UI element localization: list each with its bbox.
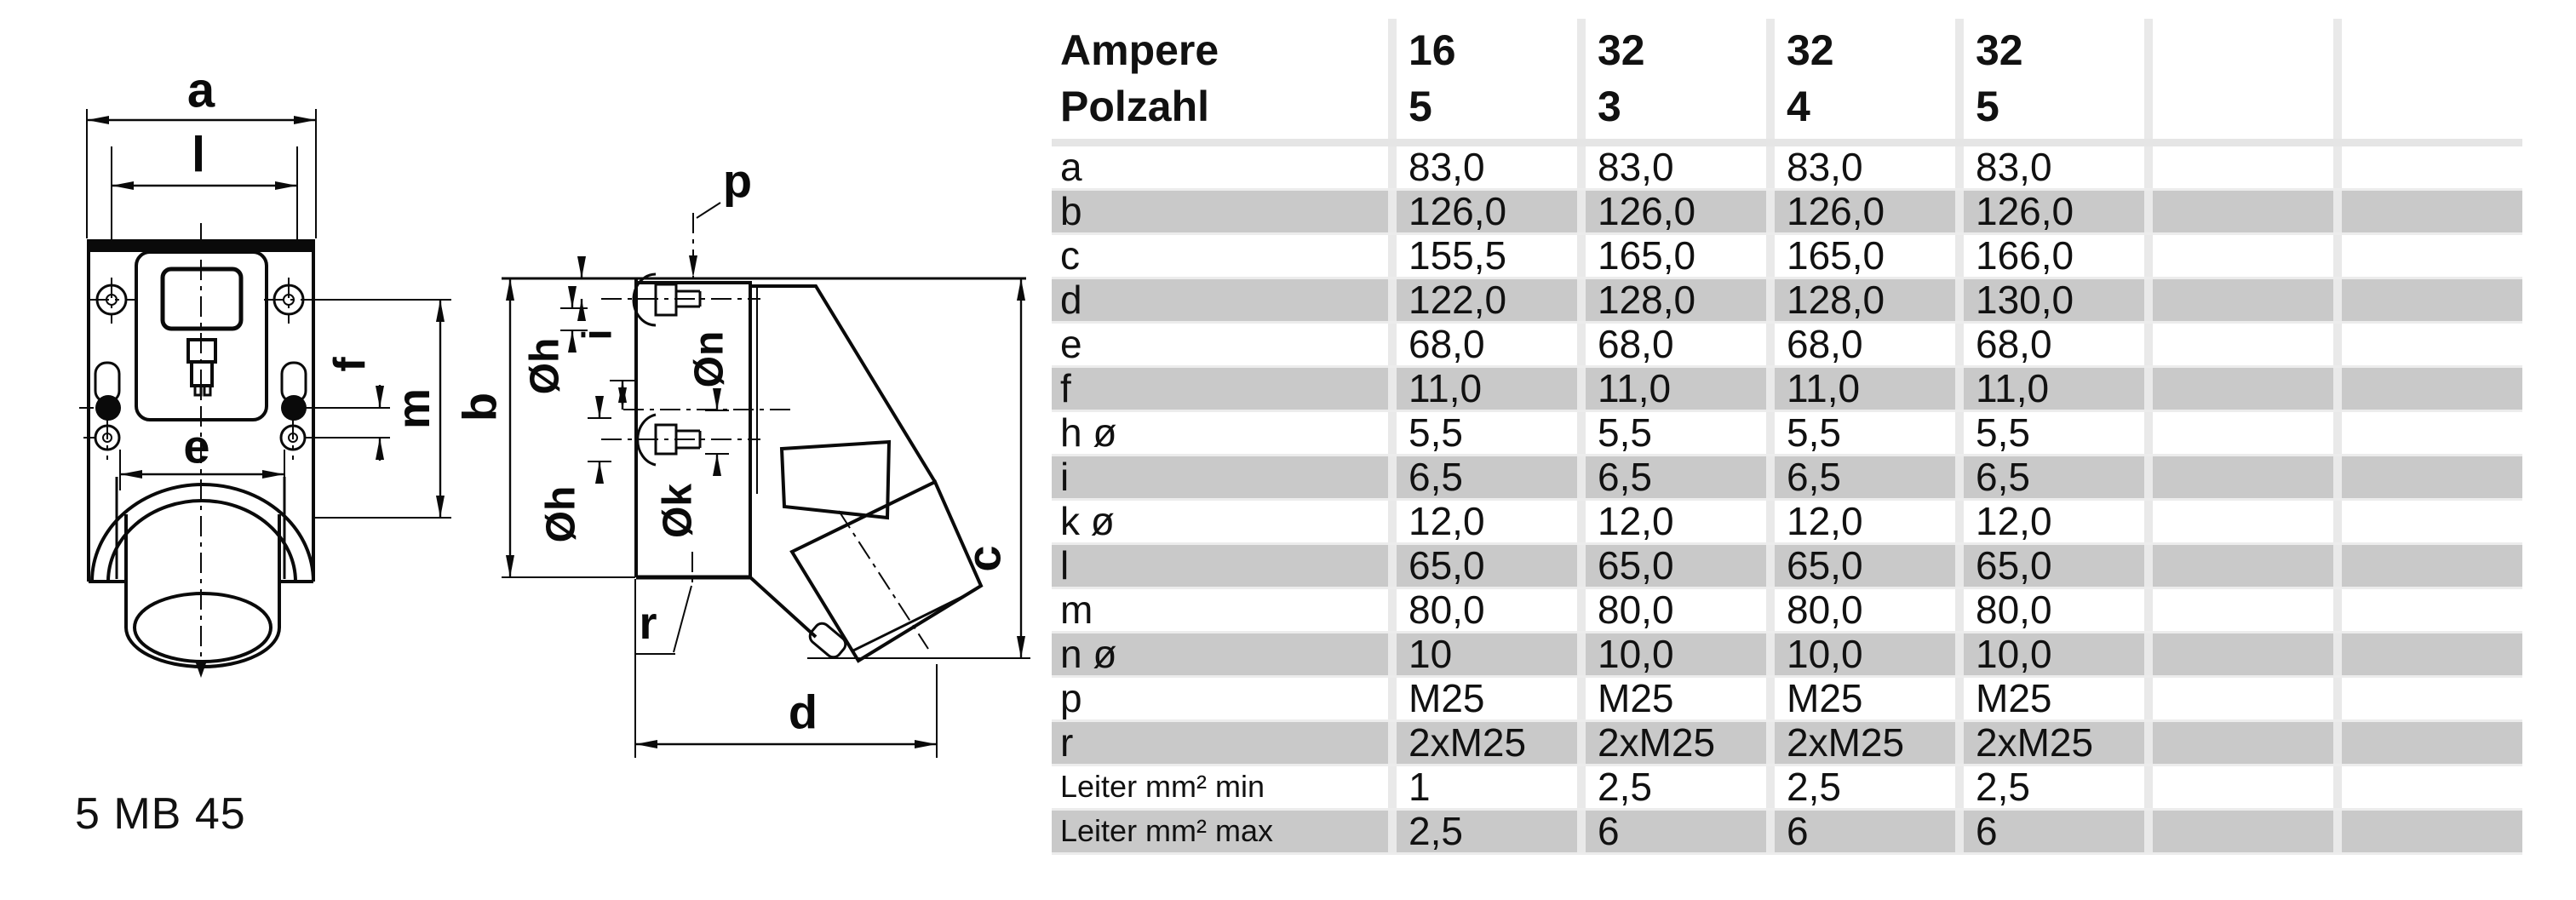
table-cell: 2xM25 [1397,722,1577,764]
table-cell [2342,235,2522,277]
header-value-cell: 16 5 [1397,19,1577,139]
catalog-page: { "model_label": "5 MB 45", "drawing": {… [0,0,2576,900]
table-cell: 10,0 [1586,633,1766,675]
row-label: m [1052,589,1388,631]
row-label: l [1052,545,1388,587]
table-cell: 12,0 [1586,501,1766,542]
table-cell: 11,0 [1397,368,1577,410]
table-row: a 83,0 83,0 83,0 83,0 [1052,146,2522,191]
dim-label-c: c [957,545,1011,571]
table-cell: 2xM25 [1586,722,1766,764]
table-row: h ø 5,5 5,5 5,5 5,5 [1052,412,2522,456]
row-label: i [1052,456,1388,498]
polzahl-value: 4 [1787,78,1955,135]
header-value-cell: 32 4 [1775,19,1955,139]
table-cell [2153,545,2333,587]
table-cell [2153,678,2333,719]
table-row: e 68,0 68,0 68,0 68,0 [1052,324,2522,368]
header-value-cell [2153,19,2333,139]
row-label: k ø [1052,501,1388,542]
table-row: c 155,5 165,0 165,0 166,0 [1052,235,2522,279]
technical-drawing: a l [0,0,1064,900]
table-cell: 68,0 [1397,324,1577,365]
table-header-row: Ampere Polzahl 16 5 32 3 32 4 32 5 [1052,19,2522,139]
table-row: p M25 M25 M25 M25 [1052,678,2522,722]
front-view: a l [79,63,451,679]
table-cell: 5,5 [1775,412,1955,454]
table-cell [2153,412,2333,454]
header-value-cell [2342,19,2522,139]
table-cell: 65,0 [1397,545,1577,587]
row-label: b [1052,191,1388,232]
ampere-value: 16 [1408,19,1577,78]
table-row: d 122,0 128,0 128,0 130,0 [1052,279,2522,324]
table-cell [2342,279,2522,321]
table-row: Leiter mm² max 2,5 6 6 6 [1052,811,2522,855]
table-cell: 130,0 [1964,279,2144,321]
table-cell [2342,324,2522,365]
table-cell: 80,0 [1586,589,1766,631]
row-label: h ø [1052,412,1388,454]
table-cell: 2,5 [1964,766,2144,808]
table-cell [2153,589,2333,631]
table-cell: 65,0 [1964,545,2144,587]
dim-label-oh-top: Øh [523,338,568,395]
table-cell: 2xM25 [1775,722,1955,764]
table-cell: 12,0 [1775,501,1955,542]
table-cell [2153,368,2333,410]
table-cell: 2,5 [1775,766,1955,808]
table-cell: 128,0 [1775,279,1955,321]
header-polzahl-label: Polzahl [1060,78,1388,135]
table-cell: 10,0 [1775,633,1955,675]
dim-label-on: Øn [687,331,732,388]
table-cell: 6,5 [1964,456,2144,498]
row-label: d [1052,279,1388,321]
dim-label-p: p [723,154,752,208]
header-ampere-label: Ampere [1060,19,1388,78]
table-cell [2342,545,2522,587]
table-row: i 6,5 6,5 6,5 6,5 [1052,456,2522,501]
row-label: n ø [1052,633,1388,675]
table-cell: 126,0 [1397,191,1577,232]
table-cell: 155,5 [1397,235,1577,277]
dim-label-a: a [187,63,215,118]
table-cell [2342,678,2522,719]
dim-label-l: l [192,128,205,183]
table-cell: 165,0 [1586,235,1766,277]
table-cell: 68,0 [1775,324,1955,365]
table-cell [2153,456,2333,498]
table-cell: 2,5 [1586,766,1766,808]
table-cell: 6 [1775,811,1955,852]
model-code: 5 MB 45 [75,788,246,840]
dimension-table: Ampere Polzahl 16 5 32 3 32 4 32 5 a 83,… [1052,19,2522,855]
table-cell: 5,5 [1586,412,1766,454]
table-cell [2342,766,2522,808]
table-cell: 5,5 [1397,412,1577,454]
dim-label-r: r [639,598,657,649]
table-cell: 11,0 [1775,368,1955,410]
table-cell: 83,0 [1964,146,2144,188]
table-cell [2153,146,2333,188]
dim-label-b: b [453,393,507,421]
table-row: b 126,0 126,0 126,0 126,0 [1052,191,2522,235]
table-cell: M25 [1775,678,1955,719]
table-cell: 126,0 [1964,191,2144,232]
table-cell: 6,5 [1397,456,1577,498]
table-cell: 2xM25 [1964,722,2144,764]
table-row: Leiter mm² min 1 2,5 2,5 2,5 [1052,766,2522,811]
polzahl-value: 5 [1976,78,2144,135]
side-view: p i Øh [453,154,1031,759]
table-cell: 10 [1397,633,1577,675]
table-cell [2342,456,2522,498]
table-cell: 122,0 [1397,279,1577,321]
dim-label-m: m [388,388,439,429]
table-cell: M25 [1964,678,2144,719]
table-cell [2342,501,2522,542]
table-cell: 6,5 [1586,456,1766,498]
ampere-value: 32 [1787,19,1955,78]
table-cell: 126,0 [1586,191,1766,232]
row-label: f [1052,368,1388,410]
table-cell: 6,5 [1775,456,1955,498]
table-cell: 80,0 [1397,589,1577,631]
table-row: k ø 12,0 12,0 12,0 12,0 [1052,501,2522,545]
table-row: l 65,0 65,0 65,0 65,0 [1052,545,2522,589]
dim-label-f: f [325,357,375,372]
table-cell [2153,324,2333,365]
table-cell: 166,0 [1964,235,2144,277]
table-cell [2153,811,2333,852]
dim-label-d: d [789,685,818,739]
table-cell: 165,0 [1775,235,1955,277]
table-cell [2153,191,2333,232]
table-cell: 11,0 [1964,368,2144,410]
table-cell [2342,146,2522,188]
row-label: r [1052,722,1388,764]
table-cell: 83,0 [1397,146,1577,188]
table-cell [2342,722,2522,764]
table-rows: a 83,0 83,0 83,0 83,0 b 126,0 126,0 126,… [1052,146,2522,855]
ampere-value: 32 [1598,19,1766,78]
table-row: r 2xM25 2xM25 2xM25 2xM25 [1052,722,2522,766]
polzahl-value: 3 [1598,78,1766,135]
header-label-cell: Ampere Polzahl [1052,19,1388,139]
table-cell [2342,191,2522,232]
table-cell: 126,0 [1775,191,1955,232]
table-cell: M25 [1397,678,1577,719]
table-cell: M25 [1586,678,1766,719]
table-cell: 6 [1964,811,2144,852]
table-cell [2153,235,2333,277]
row-label: Leiter mm² max [1052,811,1388,852]
header-value-cell: 32 5 [1964,19,2144,139]
table-row: f 11,0 11,0 11,0 11,0 [1052,368,2522,412]
table-cell [2342,368,2522,410]
row-label: c [1052,235,1388,277]
ampere-value: 32 [1976,19,2144,78]
dim-label-e: e [183,420,209,473]
table-cell [2153,722,2333,764]
table-cell: 2,5 [1397,811,1577,852]
table-cell [2342,412,2522,454]
table-cell [2153,633,2333,675]
row-label: e [1052,324,1388,365]
table-cell [2342,589,2522,631]
row-label: a [1052,146,1388,188]
table-row: n ø 10 10,0 10,0 10,0 [1052,633,2522,678]
table-cell: 1 [1397,766,1577,808]
dim-label-ok: Øk [656,484,701,538]
table-cell: 83,0 [1586,146,1766,188]
table-cell: 65,0 [1586,545,1766,587]
table-cell: 80,0 [1775,589,1955,631]
table-cell: 128,0 [1586,279,1766,321]
table-cell: 11,0 [1586,368,1766,410]
table-cell: 12,0 [1964,501,2144,542]
polzahl-value: 5 [1408,78,1577,135]
table-cell: 12,0 [1397,501,1577,542]
table-cell: 5,5 [1964,412,2144,454]
table-cell: 68,0 [1586,324,1766,365]
table-cell: 6 [1586,811,1766,852]
table-cell: 83,0 [1775,146,1955,188]
header-separator [1052,139,2522,146]
dim-label-oh-bottom: Øh [539,486,584,543]
table-cell [2153,766,2333,808]
row-label: Leiter mm² min [1052,766,1388,808]
header-value-cell: 32 3 [1586,19,1766,139]
table-cell: 65,0 [1775,545,1955,587]
table-cell [2342,633,2522,675]
table-cell [2153,279,2333,321]
table-row: m 80,0 80,0 80,0 80,0 [1052,589,2522,633]
table-cell: 10,0 [1964,633,2144,675]
table-cell [2342,811,2522,852]
row-label: p [1052,678,1388,719]
table-cell: 80,0 [1964,589,2144,631]
table-cell: 68,0 [1964,324,2144,365]
table-cell [2153,501,2333,542]
